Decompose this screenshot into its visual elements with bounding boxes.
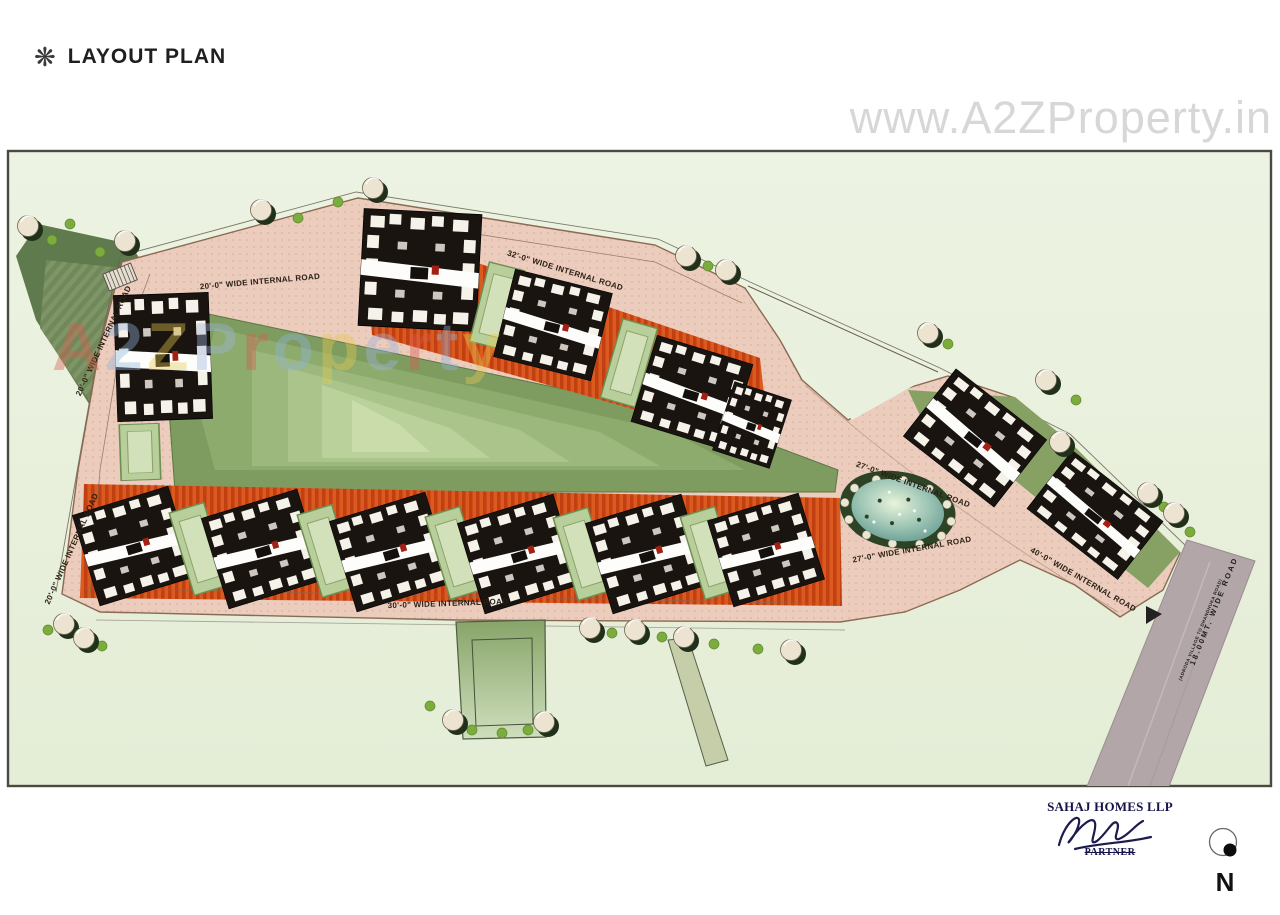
north-arrow-icon	[1203, 826, 1247, 864]
signature-block: SAHAJ HOMES LLP PARTNER	[1030, 799, 1190, 858]
building-block	[113, 292, 212, 421]
lawn-strip	[119, 423, 161, 480]
bottom-green-strip	[456, 620, 546, 739]
developer-name: SAHAJ HOMES LLP	[1030, 799, 1190, 815]
north-label: N	[1200, 869, 1250, 895]
north-compass: N	[1200, 826, 1250, 895]
scanned-layout-plan-page: ❋ LAYOUT PLAN www.A2ZProperty.in	[0, 0, 1280, 915]
building-block	[358, 208, 482, 331]
signatory-role: PARTNER	[1030, 847, 1190, 858]
watermark-url-text: www.A2ZProperty.in	[850, 92, 1272, 144]
